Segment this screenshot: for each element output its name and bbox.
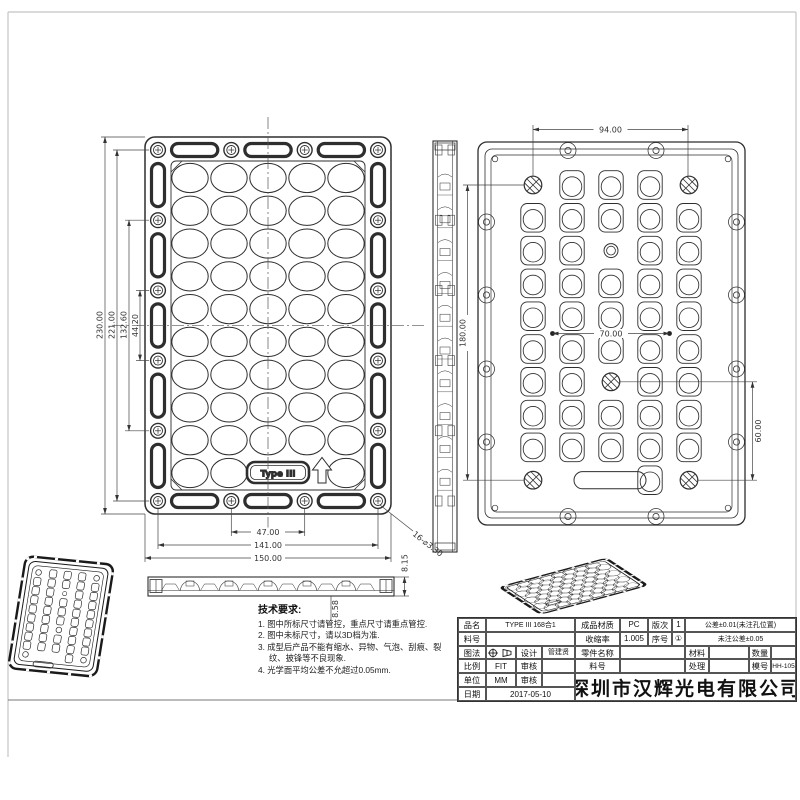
label-scale: 比例	[458, 659, 486, 673]
edge-slot	[372, 234, 385, 277]
lens-pocket-circle	[523, 242, 543, 262]
corner-hole	[725, 156, 731, 162]
lens-pocket	[521, 204, 545, 233]
side-lens-profile	[438, 272, 452, 275]
iso-pocket	[23, 641, 31, 650]
iso-pocket	[63, 571, 71, 580]
tech-requirements-title: 技术要求:	[258, 601, 454, 616]
side-boss	[448, 496, 455, 506]
iso-pocket	[44, 597, 52, 606]
lens-oval	[289, 327, 325, 356]
dim-back-94: 94.00	[599, 126, 622, 135]
lens-oval	[289, 196, 325, 225]
corner-hole	[725, 505, 731, 511]
edge-bump	[479, 361, 495, 377]
lens-oval	[328, 163, 364, 192]
lens-oval	[289, 360, 325, 389]
iso-pocket	[29, 605, 37, 614]
lens-pocket-circle	[679, 374, 699, 394]
label-quantity: 数量	[749, 646, 771, 660]
edge-bump-hole	[483, 366, 489, 372]
label-part-no: 料号	[458, 632, 486, 646]
lens-pocket-circle	[679, 210, 699, 230]
lens-pocket	[599, 302, 623, 331]
value-designer: 管建贤	[542, 646, 575, 660]
lens-pocket	[638, 236, 662, 265]
iso-pocket	[46, 588, 54, 597]
lens-oval	[172, 426, 208, 455]
iso-pocket	[68, 636, 76, 645]
lens-oval	[172, 360, 208, 389]
lens-pocket-circle	[679, 308, 699, 328]
lens-pocket-circle	[523, 341, 543, 361]
lens-oval	[328, 295, 364, 324]
edge-slot	[152, 164, 165, 207]
lens-oval	[211, 327, 247, 356]
side-lens-profile	[438, 338, 452, 341]
lens-oval	[289, 229, 325, 258]
iso-hole	[35, 569, 41, 575]
lens-pocket	[560, 335, 584, 364]
iso-pocket	[43, 606, 51, 615]
iso-pocket	[69, 627, 77, 636]
lens-pocket	[560, 433, 584, 462]
iso-hole	[93, 575, 99, 581]
lens-oval	[172, 327, 208, 356]
lens-pocket-circle	[601, 275, 621, 295]
label-material: 材料	[685, 646, 709, 660]
dim-front-holes-callout: 16-⌀3.30	[411, 529, 445, 558]
lens-pocket	[521, 368, 545, 397]
side-view-detail	[436, 145, 455, 506]
side-lens-profile	[438, 305, 452, 308]
iso-pocket	[26, 623, 34, 632]
side-detail	[440, 281, 450, 288]
label-treatment: 处理	[685, 659, 709, 673]
lens-pocket	[677, 400, 701, 429]
edge-slot	[318, 144, 364, 157]
lens-oval	[211, 163, 247, 192]
dim-front-141: 141.00	[254, 541, 282, 550]
side-boss	[436, 285, 443, 295]
lens-pocket-circle	[523, 439, 543, 459]
iso-pocket	[82, 638, 90, 647]
value-date: 2017-05-10	[486, 687, 575, 701]
side-boss	[448, 215, 455, 225]
edge-bump-hole	[733, 366, 739, 372]
tech-requirement-item: 4. 光学面平均公差不允超过0.05mm.	[258, 665, 454, 676]
side-view-vertical	[433, 141, 457, 552]
corner-hole	[492, 505, 498, 511]
edge-bump	[729, 434, 745, 450]
dim-front-height: 230.00	[96, 311, 105, 339]
lens-pocket	[677, 433, 701, 462]
lens-oval	[211, 295, 247, 324]
lens-pocket	[521, 433, 545, 462]
dim-back-180: 180.00	[459, 319, 468, 347]
orientation-arrow-icon	[313, 458, 332, 484]
lens-pocket	[599, 269, 623, 298]
edge-bump-hole	[733, 292, 739, 298]
iso-pocket	[58, 607, 66, 616]
lens-pocket	[677, 236, 701, 265]
value-part-name	[620, 646, 685, 660]
label-product: 品名	[458, 618, 486, 632]
value-shrinkage: 1.005	[620, 632, 648, 646]
lens-pocket-circle	[562, 374, 582, 394]
lens-oval	[211, 229, 247, 258]
lens-oval	[211, 393, 247, 422]
side-detail	[440, 347, 450, 354]
lens-pocket-circle	[562, 406, 582, 426]
side-boss	[436, 215, 443, 225]
side-boss	[436, 496, 443, 506]
edge-bump-hole	[733, 439, 739, 445]
iso-pocket	[47, 579, 55, 588]
title-block: 品名 TYPE III 168合1 料号 图法 设计 管建贤 比例 FIT 审核…	[457, 617, 797, 702]
edge-slot	[372, 374, 385, 417]
dim-front-132: 132.60	[120, 311, 129, 339]
side-lens-profile	[438, 436, 452, 439]
lens-pocket-circle	[523, 374, 543, 394]
label-slot	[574, 472, 646, 489]
side-rib	[162, 584, 180, 591]
label-serial: 序号	[648, 632, 672, 646]
iso-pocket	[24, 632, 32, 641]
side-detail	[264, 581, 272, 586]
lens-pocket-circle	[640, 308, 660, 328]
label-check2: 审核	[516, 673, 542, 687]
iso-hole	[80, 657, 86, 663]
edge-bump	[648, 143, 664, 159]
lens-pocket	[638, 400, 662, 429]
lens-pocket	[599, 204, 623, 233]
lens-pocket-circle	[640, 341, 660, 361]
side-rib	[357, 584, 375, 591]
lens-oval	[172, 262, 208, 291]
lens-pocket	[599, 433, 623, 462]
edge-slot	[152, 234, 165, 277]
label-part-name: 零件名称	[575, 646, 620, 660]
edge-bump-hole	[653, 513, 659, 519]
side-rib	[318, 584, 336, 591]
side-boss	[436, 356, 443, 366]
value-part-no	[486, 632, 575, 646]
side-detail	[440, 413, 450, 420]
lens-oval	[328, 458, 364, 487]
side-boss	[448, 356, 455, 366]
value-material	[709, 646, 749, 660]
tech-requirement-item: 1. 图中所标尺寸请管控，重点尺寸请重点管控.	[258, 619, 454, 630]
side-rib	[240, 584, 258, 591]
side-detail	[186, 581, 194, 586]
lens-pocket-circle	[640, 374, 660, 394]
iso-pocket	[56, 617, 64, 626]
company-name: 深圳市汉辉光电有限公司	[575, 673, 796, 701]
lens-pocket	[599, 335, 623, 364]
value-check	[542, 659, 575, 673]
lens-oval	[211, 262, 247, 291]
side-boss	[436, 426, 443, 436]
lens-pocket	[560, 368, 584, 397]
iso-view-front	[500, 558, 647, 614]
side-detail	[440, 183, 450, 190]
side-detail	[440, 249, 450, 256]
side-detail	[225, 581, 233, 586]
lens-pocket	[560, 204, 584, 233]
value-treatment	[709, 659, 749, 673]
edge-bump-hole	[483, 219, 489, 225]
tech-requirement-item: 2. 图中未标尺寸，请以3D档为准.	[258, 630, 454, 641]
lens-pocket	[599, 171, 623, 200]
lens-pocket-circle	[523, 275, 543, 295]
label-projection: 图法	[458, 646, 486, 660]
side-detail	[342, 581, 350, 586]
value-serial: ①	[672, 632, 685, 646]
label-unit: 单位	[458, 673, 486, 687]
iso-pocket	[42, 615, 50, 624]
lens-pocket-circle	[562, 177, 582, 197]
value-quantity	[771, 646, 796, 660]
value-material-finished: PC	[620, 618, 648, 632]
side-detail	[440, 380, 450, 387]
lens-oval	[172, 196, 208, 225]
lens-oval	[211, 458, 247, 487]
iso-pocket	[88, 601, 96, 610]
iso-view-back	[8, 556, 114, 677]
label-shrinkage: 收缩率	[575, 632, 620, 646]
iso-hole	[56, 627, 62, 633]
edge-bump	[560, 143, 576, 159]
edge-slot	[372, 444, 385, 487]
lens-pocket	[638, 433, 662, 462]
lens-pocket	[638, 171, 662, 200]
lens-pocket-circle	[562, 242, 582, 262]
value-product: TYPE III 168合1	[486, 618, 575, 632]
side-detail	[440, 314, 450, 321]
front-view: Type III	[112, 117, 424, 534]
edge-bump-hole	[483, 292, 489, 298]
edge-bump	[479, 287, 495, 303]
edge-bump	[479, 434, 495, 450]
edge-bump	[479, 214, 495, 230]
side-lens-profile	[438, 469, 452, 472]
iso-pocket	[84, 629, 92, 638]
lens-pocket-circle	[640, 439, 660, 459]
label-date: 日期	[458, 687, 486, 701]
lens-pocket-circle	[601, 439, 621, 459]
pilot-hole	[604, 244, 618, 258]
dim-front-hole-span-v: 221.00	[108, 311, 117, 339]
iso-pocket	[40, 624, 48, 633]
lens-pocket-circle	[562, 341, 582, 361]
iso-pocket	[49, 570, 57, 579]
pilot-hole-inner	[607, 246, 616, 255]
lens-pocket-circle	[601, 177, 621, 197]
side-detail	[440, 216, 450, 223]
value-check2	[542, 673, 575, 687]
label-design: 设计	[516, 646, 542, 660]
edge-slot	[372, 164, 385, 207]
lens-pocket-circle	[640, 242, 660, 262]
edge-bump-hole	[565, 513, 571, 519]
side-lens-profile	[438, 371, 452, 374]
iso-pocket	[81, 647, 89, 656]
side-rib	[201, 584, 219, 591]
lens-pocket	[560, 171, 584, 200]
label-material-finished: 成品材质	[575, 618, 620, 632]
front-dimensions: 230.00 221.00 132.60 44.20 47.00 141.00 …	[96, 137, 445, 563]
iso-pocket	[85, 619, 93, 628]
label-mold-no: 模号	[749, 659, 771, 673]
lens-pocket	[521, 400, 545, 429]
lens-pocket-circle	[523, 210, 543, 230]
iso-pocket	[31, 586, 39, 595]
lens-oval	[172, 229, 208, 258]
lens-oval	[172, 393, 208, 422]
lens-pocket-circle	[601, 210, 621, 230]
type-label-plaque: Type III	[247, 462, 309, 483]
lens-oval	[211, 360, 247, 389]
lens-pocket-circle	[601, 406, 621, 426]
iso-pocket	[91, 583, 99, 592]
iso-pocket	[89, 592, 97, 601]
lens-oval	[328, 393, 364, 422]
edge-bump-hole	[653, 147, 659, 153]
edge-bump-hole	[733, 219, 739, 225]
edge-bump	[648, 509, 664, 525]
iso-pocket	[71, 618, 79, 627]
lens-pocket	[638, 204, 662, 233]
lens-pocket-circle	[601, 341, 621, 361]
lens-pocket-circle	[679, 242, 699, 262]
iso-pocket	[78, 572, 86, 581]
lens-pocket-circle	[523, 406, 543, 426]
iso-back-detail	[20, 568, 101, 672]
label-part-no2: 料号	[575, 659, 620, 673]
iso-pocket	[30, 595, 38, 604]
lens-pocket-circle	[640, 210, 660, 230]
lens-pocket	[521, 236, 545, 265]
iso-pocket	[65, 654, 73, 663]
drawing-sheet: Type III	[0, 0, 800, 800]
lens-oval	[289, 295, 325, 324]
edge-bump	[729, 287, 745, 303]
lens-pocket	[521, 269, 545, 298]
edge-slot	[172, 495, 218, 508]
iso-pocket	[27, 614, 35, 623]
dim-front-44: 44.20	[131, 314, 140, 337]
side-boss	[448, 426, 455, 436]
lens-pocket-circle	[679, 275, 699, 295]
iso-pocket	[33, 577, 41, 586]
lens-oval	[289, 426, 325, 455]
lens-pocket	[677, 335, 701, 364]
iso-hole	[22, 651, 28, 657]
iso-pocket	[72, 609, 80, 618]
edge-slot	[152, 444, 165, 487]
iso-pocket	[52, 644, 60, 653]
side-lens-profile	[438, 207, 452, 210]
lens-pocket-circle	[679, 406, 699, 426]
lens-oval	[328, 196, 364, 225]
tolerance-note-2: 未注公差±0.05	[685, 632, 796, 646]
iso-pocket	[75, 591, 83, 600]
iso-pocket	[76, 582, 84, 591]
lens-oval	[328, 327, 364, 356]
dim-front-150: 150.00	[254, 554, 282, 563]
dim-side-815: 8.15	[401, 554, 410, 572]
bottom-view-outline	[148, 577, 394, 596]
lens-pocket	[521, 302, 545, 331]
side-detail	[303, 581, 311, 586]
iso-pocket	[62, 580, 70, 589]
tech-requirement-item: 3. 成型后产品不能有缩水、异物、气泡、刮痕、裂纹、披锋等不良现象.	[258, 642, 454, 665]
lens-pocket	[560, 269, 584, 298]
lens-oval	[172, 295, 208, 324]
value-unit: MM	[486, 673, 516, 687]
lens-oval	[211, 426, 247, 455]
lens-pocket	[599, 400, 623, 429]
lens-pocket-circle	[562, 210, 582, 230]
edge-bump-hole	[483, 439, 489, 445]
label-revision: 版次	[648, 618, 672, 632]
lens-pocket-circle	[640, 406, 660, 426]
lens-pocket	[521, 335, 545, 364]
side-detail	[440, 478, 450, 485]
edge-slot	[152, 374, 165, 417]
iso-pocket	[59, 598, 67, 607]
lens-oval	[172, 458, 208, 487]
lens-oval	[328, 262, 364, 291]
iso-pocket	[66, 645, 74, 654]
tolerance-note-1: 公差±0.01(未注孔位置)	[685, 618, 796, 632]
edge-bump-hole	[565, 147, 571, 153]
lens-oval	[328, 360, 364, 389]
side-lens-profile	[438, 174, 452, 177]
value-scale: FIT	[486, 659, 516, 673]
lens-pocket	[638, 466, 662, 495]
lens-pocket-circle	[523, 308, 543, 328]
side-detail	[440, 445, 450, 452]
lens-pocket-circle	[679, 341, 699, 361]
value-mold-no: HH-105	[771, 659, 796, 673]
lens-oval	[211, 196, 247, 225]
lens-pocket	[638, 302, 662, 331]
lens-pocket	[638, 335, 662, 364]
lens-pocket	[638, 269, 662, 298]
technical-requirements: 技术要求: 1. 图中所标尺寸请管控，重点尺寸请重点管控. 2. 图中未标尺寸，…	[258, 601, 454, 676]
iso-pocket	[37, 642, 45, 651]
corner-hole	[492, 156, 498, 162]
dim-back-70: 70.00	[600, 330, 623, 339]
label-check: 审核	[516, 659, 542, 673]
iso-pocket	[87, 610, 95, 619]
lens-oval	[289, 262, 325, 291]
iso-pocket	[53, 635, 61, 644]
lens-pocket	[560, 400, 584, 429]
iso-hole	[62, 591, 67, 596]
back-dimensions: 94.00 180.00 70.00 60.00	[459, 125, 764, 480]
lens-pocket-circle	[640, 472, 660, 492]
dim-back-60: 60.00	[754, 420, 763, 443]
edge-slot	[318, 495, 364, 508]
lens-pocket-circle	[640, 275, 660, 295]
projection-symbol-icon	[487, 647, 515, 659]
value-revision: 1	[672, 618, 685, 632]
lens-pocket	[677, 204, 701, 233]
iso-pocket	[73, 600, 81, 609]
